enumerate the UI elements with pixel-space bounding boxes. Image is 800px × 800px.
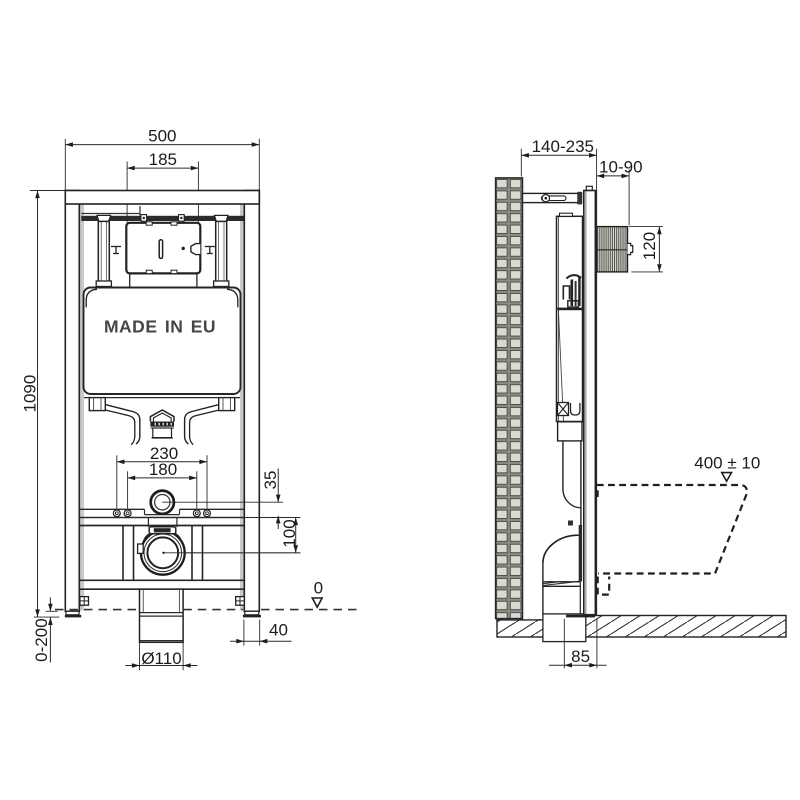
svg-text:120: 120	[640, 232, 659, 260]
svg-text:10-90: 10-90	[599, 157, 642, 176]
svg-text:MADE IN EU: MADE IN EU	[104, 317, 216, 337]
svg-text:1090: 1090	[21, 375, 40, 413]
svg-text:0-200: 0-200	[32, 618, 51, 661]
svg-text:40: 40	[269, 621, 288, 640]
svg-text:400 ± 10: 400 ± 10	[694, 454, 760, 473]
svg-text:500: 500	[148, 127, 176, 146]
svg-text:85: 85	[571, 647, 590, 666]
svg-text:100: 100	[280, 519, 299, 547]
svg-text:0: 0	[314, 579, 323, 598]
svg-text:Ø110: Ø110	[141, 649, 181, 668]
svg-text:180: 180	[149, 460, 177, 479]
svg-text:140-235: 140-235	[532, 137, 594, 156]
svg-text:185: 185	[149, 150, 177, 169]
svg-text:35: 35	[261, 471, 280, 490]
